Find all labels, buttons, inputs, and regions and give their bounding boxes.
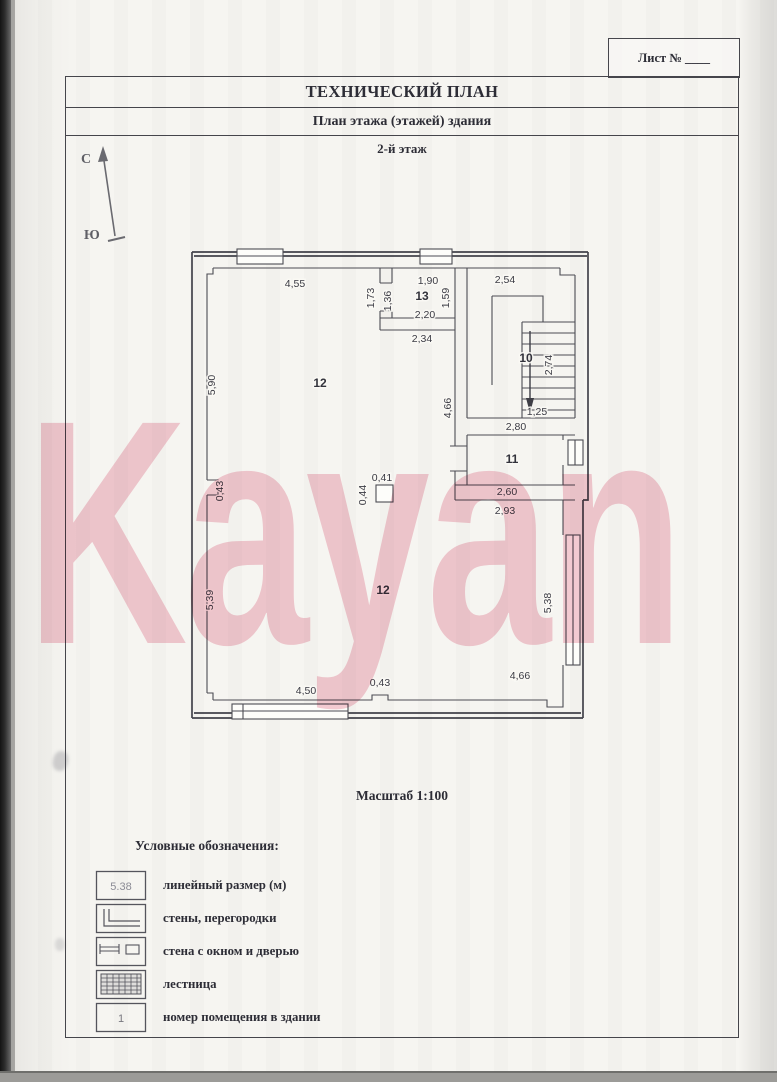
windows [232, 249, 583, 719]
legend-item-walls: стены, перегородки [95, 903, 321, 934]
scan-edge-left-shadow [11, 0, 15, 1080]
dim-room13-bottom: 2,20 [415, 309, 436, 321]
dim-below-room13: 2,34 [412, 333, 433, 345]
column [376, 485, 393, 502]
page-title: ТЕХНИЧЕСКИЙ ПЛАН [66, 77, 738, 108]
dim-room13-right: 1,59 [440, 288, 452, 309]
legend-item-wall-window-door: стена с окном и дверью [95, 936, 321, 967]
legend: Условные обозначения: 5.38 линейный разм… [95, 838, 321, 1035]
room-number-icon: 1 [95, 1002, 147, 1033]
room-number-13: 13 [415, 289, 429, 303]
compass-north-label: С [81, 152, 91, 167]
walls-partitions-icon [95, 903, 147, 934]
legend-item-room-number: 1 номер помещения в здании [95, 1002, 321, 1033]
dim-stair-bottom: 2,80 [506, 421, 527, 433]
dim-column-h: 0,44 [357, 485, 369, 506]
page-subtitle: План этажа (этажей) здания [66, 108, 738, 136]
dim-room13-left-inner: 1,36 [382, 291, 394, 312]
dim-top-room13: 1,90 [418, 275, 439, 287]
dim-bottom-left: 4,50 [296, 685, 317, 697]
dim-bottom-right: 4,66 [510, 670, 531, 682]
legend-item-linear-dimension: 5.38 линейный размер (м) [95, 870, 321, 901]
compass-south-label: Ю [84, 228, 100, 243]
floor-plan-drawing: 12 12 13 10 11 4,55 1,90 2,54 2,20 2,34 … [185, 243, 595, 723]
wall-window-door-icon [95, 936, 147, 967]
dim-stair-flight: 1,25 [527, 406, 548, 418]
svg-text:1: 1 [118, 1013, 124, 1025]
legend-item-label: лестница [163, 977, 217, 992]
dim-column-w: 0,41 [372, 472, 393, 484]
dim-room13-left-outer: 1,73 [365, 288, 377, 309]
scan-edge-left [0, 0, 11, 1080]
room-number-10: 10 [519, 351, 533, 365]
dim-bottom-mid: 0,43 [370, 677, 391, 689]
stairs-icon [95, 969, 147, 1000]
dim-top-stair: 2,54 [495, 274, 516, 286]
legend-item-label: стены, перегородки [163, 911, 277, 926]
north-arrow-icon: С Ю [75, 140, 135, 250]
dim-stair-width: 2,74 [543, 355, 555, 376]
dim-left-lower: 5,39 [204, 590, 216, 611]
scale-label: Масштаб 1:100 [65, 788, 739, 804]
legend-item-label: номер помещения в здании [163, 1010, 321, 1025]
legend-item-label: стена с окном и дверью [163, 944, 299, 959]
dim-room11-below: 2,93 [495, 505, 516, 517]
scanned-page: Лист № ____ ТЕХНИЧЕСКИЙ ПЛАН План этажа … [0, 0, 777, 1080]
legend-item-label: линейный размер (м) [163, 878, 286, 893]
dimension-sample-icon: 5.38 [95, 870, 147, 901]
scan-smudge [55, 938, 65, 951]
dim-top-left: 4,55 [285, 278, 306, 290]
dim-stair-left: 4,66 [442, 398, 454, 419]
scan-edge-bottom [0, 1071, 777, 1082]
room-number-12-lower: 12 [376, 583, 390, 597]
legend-item-stairs: лестница [95, 969, 321, 1000]
svg-text:5.38: 5.38 [110, 881, 131, 893]
legend-title: Условные обозначения: [135, 838, 321, 854]
dim-room11-bottom: 2,60 [497, 486, 518, 498]
dim-right-lower: 5,38 [542, 593, 554, 614]
floor-label: 2-й этаж [65, 141, 739, 157]
room-number-12-upper: 12 [313, 376, 327, 390]
sheet-number-box: Лист № ____ [608, 38, 740, 78]
room-number-11: 11 [506, 452, 519, 466]
dim-left-upper: 5,90 [206, 375, 218, 396]
dim-left-pilaster: 0,43 [214, 481, 226, 502]
sheet-number-label: Лист № ____ [638, 51, 710, 66]
